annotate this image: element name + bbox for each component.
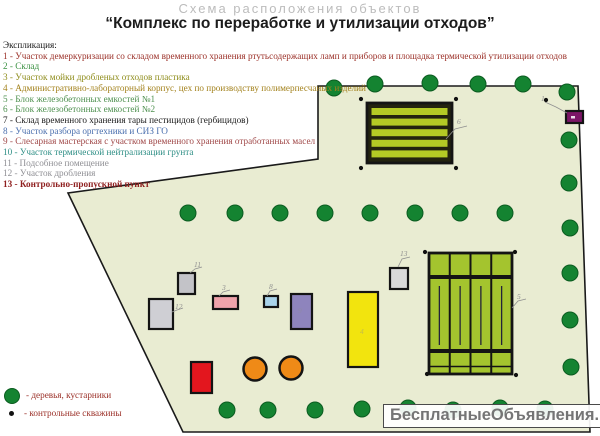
tree-icon — [362, 205, 378, 221]
tree-icon — [562, 265, 578, 281]
tree-icon — [180, 205, 196, 221]
tree-icon — [407, 205, 423, 221]
building-label-11: 11 — [194, 260, 201, 269]
tree-icon — [272, 205, 288, 221]
tree-icon — [260, 402, 276, 418]
legend-item-9: 9 - Слесарная мастерская с участком врем… — [3, 136, 567, 147]
page-title: “Комплекс по переработке и утилизации от… — [0, 15, 600, 33]
legend-item-8: 8 - Участок разбора оргтехники и СИЗ ГО — [3, 126, 567, 137]
building-label-9: 9 — [298, 306, 302, 315]
symbol-trees-label: - деревья, кустарники — [26, 390, 111, 400]
building-label-5: 5 — [517, 292, 521, 301]
well-icon — [423, 250, 427, 254]
building-b8 — [264, 296, 278, 307]
legend-item-10: 10 - Участок термической нейтрализации г… — [3, 147, 567, 158]
legend-item-11: 11 - Подсобное помещение — [3, 158, 567, 169]
building-tank2 — [280, 357, 303, 380]
legend-item-7: 7 - Склад временного хранения тары пести… — [3, 115, 567, 126]
legend-item-3: 3 - Участок мойки дробленых отходов плас… — [3, 72, 567, 83]
tree-icon — [562, 220, 578, 236]
legend-item-12: 12 - Участок дробления — [3, 168, 567, 179]
tree-icon — [563, 359, 579, 375]
symbol-trees: - деревья, кустарники — [4, 388, 122, 406]
legend-item-6: 6 - Блок железобетонных емкостей №2 — [3, 104, 567, 115]
tree-icon — [497, 205, 513, 221]
scheme-watermark-title: Схема расположения объектов — [0, 1, 600, 16]
legend-list: 1 - Участок демеркуризации со складом вр… — [3, 51, 567, 190]
tree-icon — [452, 205, 468, 221]
tree-icon — [219, 402, 235, 418]
symbol-wells: - контрольные скважины — [4, 406, 122, 424]
tree-icon — [4, 388, 20, 404]
legend-item-4: 4 - Административно-лабораторный корпус,… — [3, 83, 567, 94]
well-icon — [425, 372, 429, 376]
symbol-wells-label: - контрольные скважины — [24, 408, 122, 418]
building-tank1 — [244, 358, 267, 381]
building-label-12: 12 — [175, 302, 183, 311]
building-b12 — [149, 299, 173, 329]
tree-icon — [562, 312, 578, 328]
symbols-legend: - деревья, кустарники - контрольные сква… — [4, 388, 122, 424]
tree-icon — [317, 205, 333, 221]
site-watermark-badge: БесплатныеОбъявления.рф — [383, 404, 600, 428]
legend-item-13: 13 - Контрольно-пропускной пункт — [3, 179, 567, 190]
legend-heading: Экспликация: — [3, 40, 567, 51]
legend: Экспликация: 1 - Участок демеркуризации … — [3, 40, 567, 190]
tree-icon — [307, 402, 323, 418]
building-label-3: 3 — [221, 283, 226, 292]
well-icon — [513, 250, 517, 254]
tree-icon — [227, 205, 243, 221]
well-icon — [9, 411, 14, 416]
building-b3 — [213, 296, 238, 309]
well-icon — [514, 373, 518, 377]
legend-item-1: 1 - Участок демеркуризации со складом вр… — [3, 51, 567, 62]
building-label-13: 13 — [400, 249, 408, 258]
building-label-4: 4 — [360, 327, 364, 336]
legend-item-5: 5 - Блок железобетонных емкостей №1 — [3, 94, 567, 105]
building-b1-mark — [571, 116, 575, 119]
building-label-8: 8 — [269, 282, 273, 291]
legend-item-2: 2 - Склад — [3, 61, 567, 72]
page-root: 6513111238149 Схема расположения объекто… — [0, 0, 600, 436]
tree-icon — [354, 401, 370, 417]
building-b-red — [191, 362, 212, 393]
building-b11 — [178, 273, 195, 294]
building-b13 — [390, 268, 408, 289]
